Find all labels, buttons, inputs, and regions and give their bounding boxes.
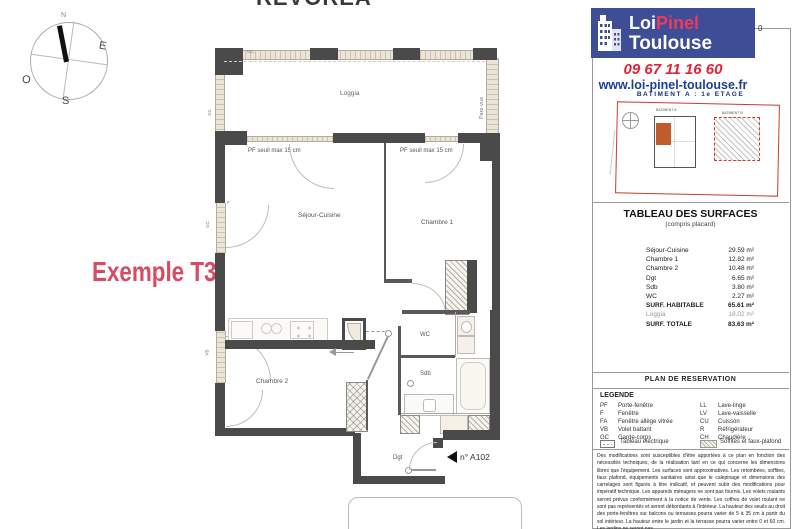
- partition-stub: [384, 279, 412, 283]
- building-a-footprint: [654, 116, 696, 168]
- dgt-label: Dgt: [393, 455, 402, 461]
- legend-row: VBVolet battant: [600, 426, 673, 434]
- wall-block: [490, 310, 500, 435]
- bathtub-icon: [456, 358, 490, 414]
- entry-door-arc: [409, 442, 437, 470]
- wc-wall: [398, 326, 401, 415]
- legend-row: CUCuisson: [700, 418, 756, 426]
- wall-block: [215, 253, 225, 331]
- pf-window-left: [247, 136, 333, 142]
- legend-left-col: PFPorte-fenêtre FFenêtre FAFenêtre allèg…: [600, 402, 673, 442]
- legend-row: FAFenêtre allège vitrée: [600, 418, 673, 426]
- disclaimer-text: Des modifications sont susceptibles d'êt…: [597, 453, 785, 529]
- fixture-divider: [455, 312, 456, 357]
- lot-fragment: 0: [758, 24, 762, 33]
- wall-block: [492, 133, 500, 313]
- example-type-label: Exemple T3: [92, 256, 217, 288]
- surfaces-title: TABLEAU DES SURFACES: [592, 208, 789, 220]
- wall-block: [333, 133, 425, 143]
- gc-label-left: GC: [207, 109, 212, 116]
- brand-loi: Loi: [629, 13, 656, 33]
- partition-wall: [366, 380, 368, 430]
- loggia-label: Loggia: [340, 90, 360, 97]
- soffit-legend-icon: [700, 440, 717, 448]
- divider: [592, 372, 789, 373]
- door-arc: [425, 144, 464, 183]
- phone-number: 09 67 11 16 60: [591, 61, 755, 78]
- placard-chambre2: [346, 382, 368, 432]
- brand-pinel: Pinel: [656, 13, 699, 33]
- logo-loipinel: LoiPinel Toulouse: [591, 8, 755, 58]
- clipped-residence-title: REVOREA: [256, 0, 376, 11]
- sliding-door-knob: [407, 380, 414, 387]
- legend-row: LLLave-linge: [700, 402, 756, 410]
- surfaces-subtitle: (compris placard): [592, 221, 789, 228]
- loggia-soffit-dashline: [224, 61, 485, 62]
- legend-right-col: LLLave-linge LVLave-vaisselle CUCuisson …: [700, 402, 756, 442]
- legend-soffit-label: Soffites et faux-plafond: [720, 439, 781, 445]
- surfaces-table: Séjour-Cuisine29.59 m² Chambre 112.82 m²…: [646, 246, 754, 329]
- lot-number-label: n° A102: [460, 452, 490, 462]
- soffit-box: [400, 415, 420, 434]
- surface-row: Séjour-Cuisine29.59 m²: [646, 246, 754, 255]
- wc-wall: [402, 310, 470, 314]
- wall-block: [467, 260, 477, 313]
- gc-label-window: GC: [205, 221, 210, 228]
- partition-wall: [384, 143, 386, 281]
- chambre2-label: Chambre 2: [256, 378, 288, 385]
- building-b-footprint: [714, 117, 760, 161]
- legend-row: LVLave-vaisselle: [700, 410, 756, 418]
- legend-elec-label: Tableau électrique: [620, 439, 669, 445]
- window-arc: [226, 205, 269, 248]
- placard-chambre1: [445, 260, 469, 315]
- gc-label-top: GC: [247, 49, 254, 54]
- door-arc: [289, 144, 334, 189]
- wc-sdb-divider: [401, 355, 455, 358]
- sdb-bottom-line: [401, 413, 490, 414]
- compass-o: O: [21, 73, 31, 86]
- sliding-door-knob: [385, 330, 392, 337]
- wall-block: [473, 48, 497, 60]
- pf-window-right: [425, 136, 458, 142]
- wall-block: [353, 476, 445, 484]
- surface-row: Sdb3.80 m²: [646, 283, 754, 292]
- compass-s: S: [62, 95, 69, 107]
- cooktop-icon: [290, 321, 314, 339]
- surface-row: Chambre 210.48 m²: [646, 264, 754, 273]
- loggia-parevue-screen: [486, 58, 499, 135]
- inset-compass-icon: [622, 112, 639, 129]
- wc-label: WC: [420, 332, 430, 338]
- wall-block: [215, 143, 225, 203]
- pare-vue-label: Pare-vue: [479, 97, 485, 119]
- lot-arrow-icon: [447, 451, 457, 463]
- brand-city: Toulouse: [629, 33, 712, 55]
- surface-row-total: SURF. HABITABLE65.61 m²: [646, 301, 754, 310]
- building-floor-label: BATIMENT A : 1e ETAGE: [592, 91, 789, 98]
- wall-block: [393, 48, 420, 60]
- reservation-title: PLAN DE RESERVATION: [592, 376, 789, 383]
- surface-row: Chambre 112.82 m²: [646, 255, 754, 264]
- vb-label-window: VB: [205, 349, 210, 355]
- compass-n: N: [61, 12, 66, 19]
- wall-block: [310, 48, 338, 60]
- divider: [592, 202, 789, 203]
- loggia-top-railing: [215, 50, 497, 60]
- wall-block: [443, 430, 500, 440]
- surface-row: Dgt6.65 m²: [646, 274, 754, 283]
- sejour-label: Séjour-Cuisine: [298, 212, 341, 219]
- surface-row-muted: Loggia18.02 m²: [646, 310, 754, 319]
- electrical-panel-icon: [600, 440, 615, 448]
- legend-title: LEGENDE: [600, 392, 634, 399]
- divider: [592, 388, 789, 389]
- washbasin-icon: [457, 336, 475, 354]
- legend-row: PFPorte-fenêtre: [600, 402, 673, 410]
- chambre1-label: Chambre 1: [421, 219, 453, 226]
- plan-reservation-page: REVOREA N E O S Exemple T3 GC GC Loggia …: [0, 0, 800, 529]
- batiment-b-label: BATIMENT B: [722, 111, 743, 115]
- sdb-label: Sdb: [420, 371, 431, 377]
- sink-icon: [271, 323, 282, 334]
- highlighted-unit: [656, 123, 671, 145]
- window-sejour: [216, 203, 226, 253]
- toilet-icon: [457, 316, 475, 336]
- fridge-icon: [231, 321, 253, 339]
- legend-row: RRéfrigérateur: [700, 426, 756, 434]
- entry-arrow-shaft: [336, 352, 354, 353]
- surface-row: WC2.27 m²: [646, 292, 754, 301]
- building-logo-icon: [595, 13, 625, 53]
- wall-block: [222, 428, 355, 436]
- batiment-a-label: BATIMENT A: [656, 108, 677, 112]
- window-arc: [226, 390, 263, 427]
- website-link[interactable]: www.loi-pinel-toulouse.fr: [585, 78, 761, 92]
- surface-row-total: SURF. TOTALE83.63 m²: [646, 320, 754, 329]
- legend-row: FFenêtre: [600, 410, 673, 418]
- entry-arrow-icon: [329, 348, 336, 356]
- window-chambre2: [216, 331, 226, 383]
- kitchen-wall: [225, 340, 375, 349]
- corridor-outline: [348, 497, 522, 529]
- divider: [592, 449, 789, 450]
